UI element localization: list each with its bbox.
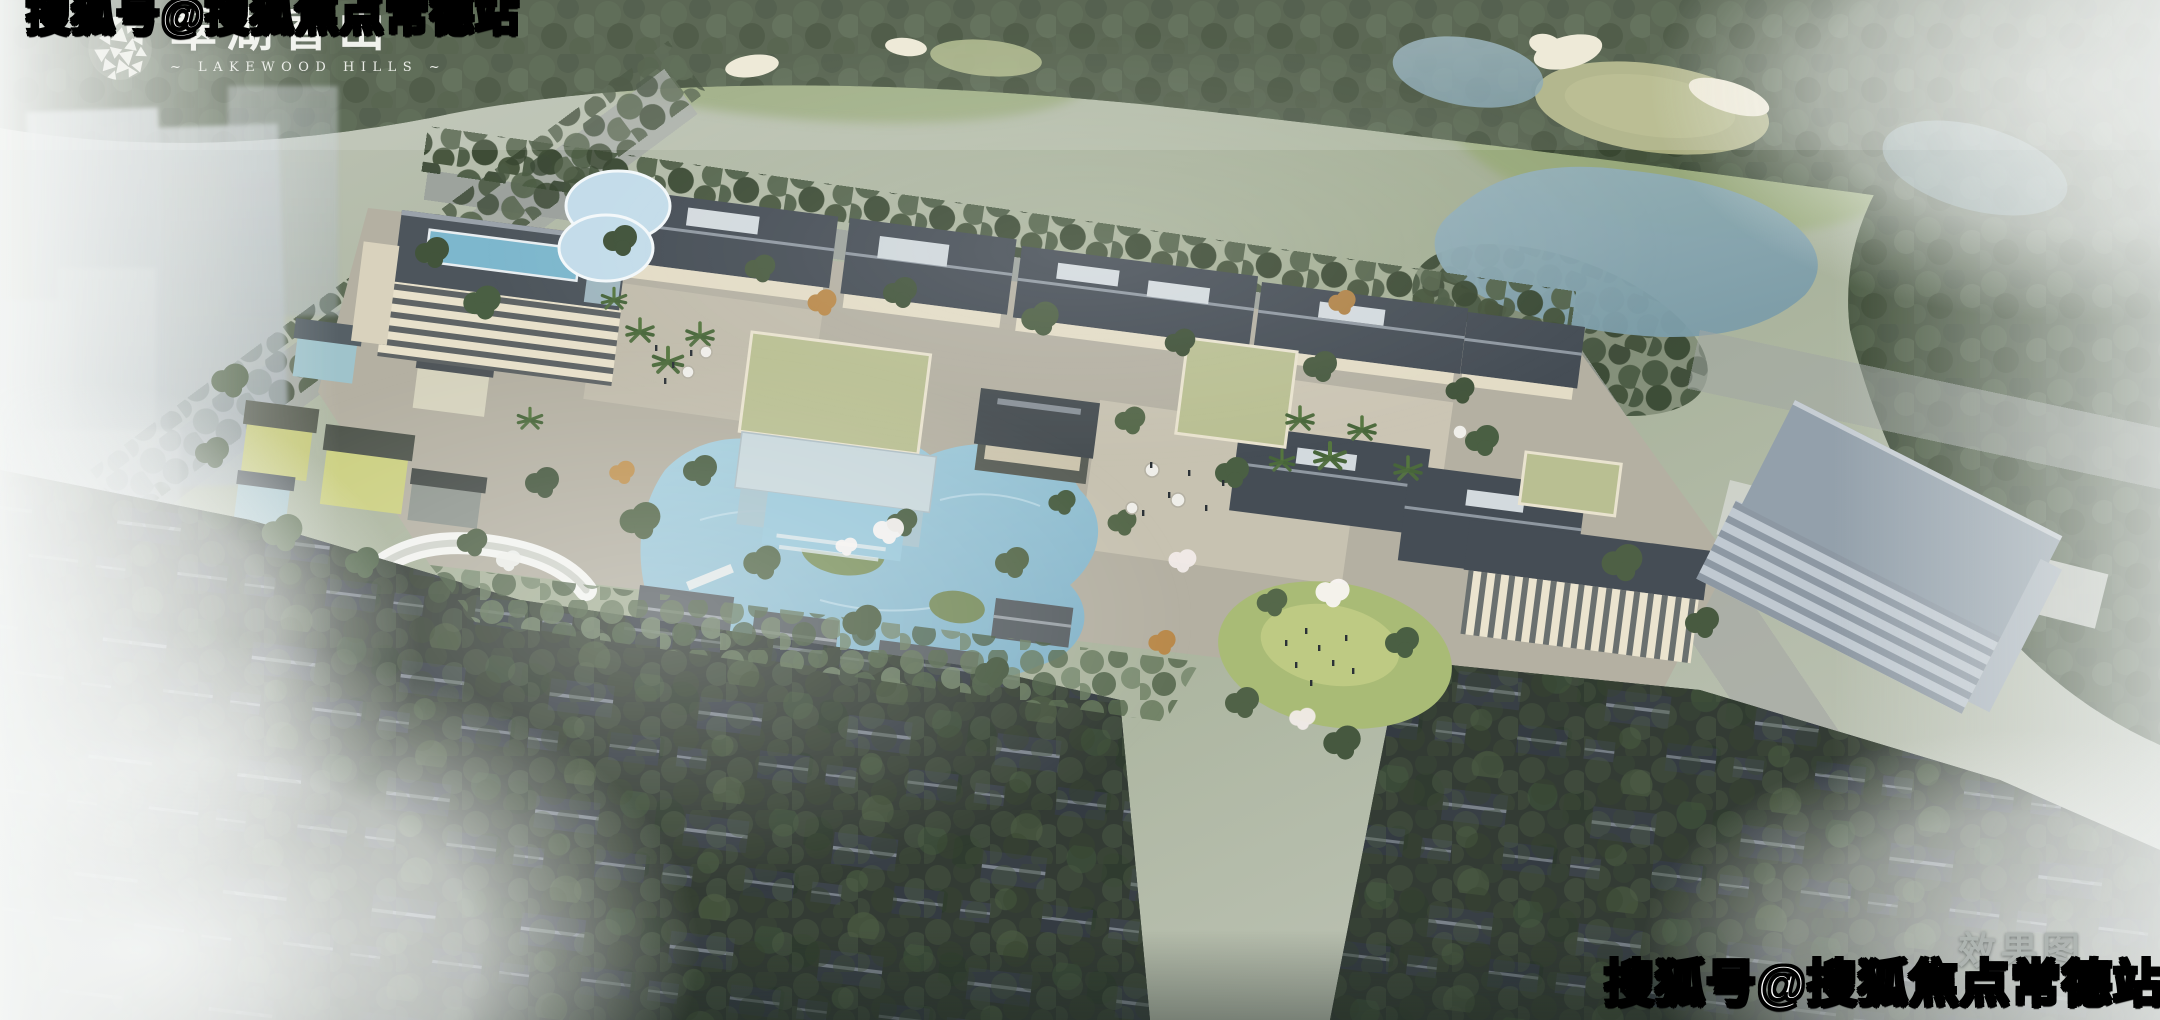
logo-name-english: ~ LAKEWOOD HILLS ~ <box>170 60 446 75</box>
watermark-bottom: 搜狐号@搜狐焦点常德站 <box>1604 944 2160 1016</box>
watermark-top: 搜狐号@搜狐焦点常德站 <box>26 0 520 43</box>
masterplan-scene <box>0 0 2160 1020</box>
aerial-rendering: 翠湖香山 ~ LAKEWOOD HILLS ~ 搜狐号@搜狐焦点常德站 效果图 … <box>0 0 2160 1020</box>
